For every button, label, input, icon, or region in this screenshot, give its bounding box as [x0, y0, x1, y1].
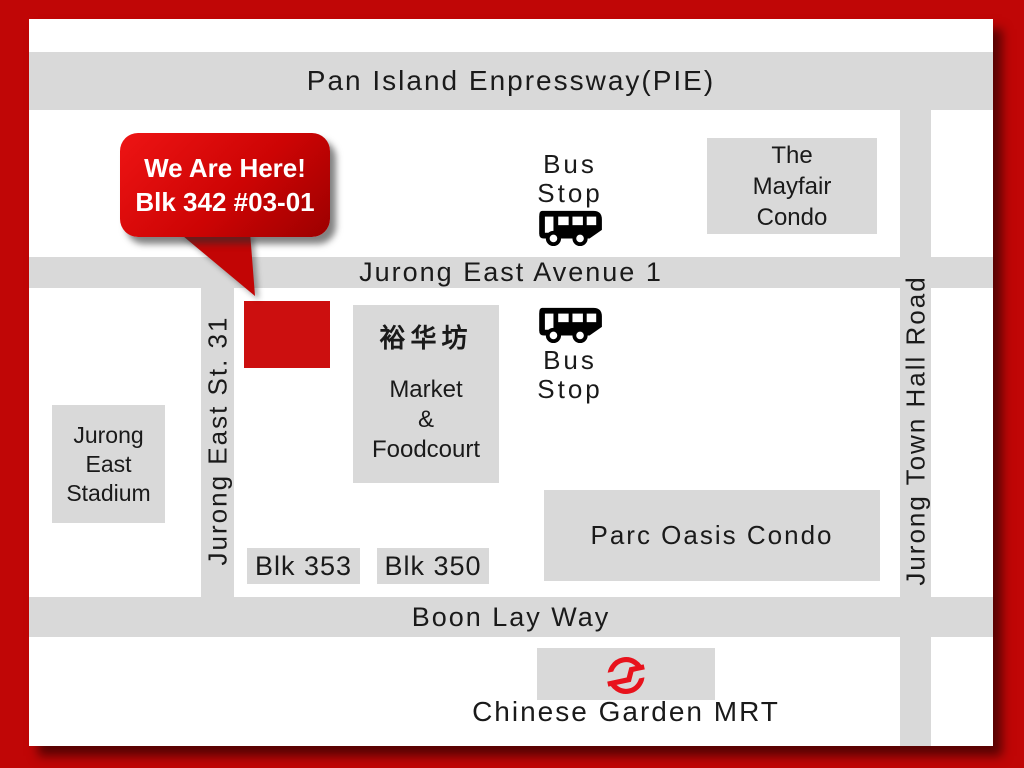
bus-stop-top-label: Bus Stop [525, 150, 615, 208]
stadium-line2: East [85, 450, 131, 479]
bus-stop-mid-label: Bus Stop [525, 346, 615, 404]
callout-line1: We Are Here! [144, 151, 306, 185]
stadium-line1: Jurong [73, 421, 143, 450]
road-label-st-31: Jurong East St. 31 [202, 271, 235, 611]
mrt-station-label: Chinese Garden MRT [426, 696, 826, 728]
mayfair-line1: The [771, 140, 812, 171]
bus-stop-mid-line2: Stop [525, 375, 615, 404]
road-label-avenue-1: Jurong East Avenue 1 [359, 257, 663, 288]
callout-line2: Blk 342 #03-01 [135, 185, 314, 219]
mrt-logo-icon [599, 654, 653, 697]
building-parc-oasis-condo: Parc Oasis Condo [544, 490, 880, 581]
market-line2: & [418, 405, 434, 435]
building-mayfair-condo: The Mayfair Condo [707, 138, 877, 234]
bus-icon [533, 306, 610, 344]
we-are-here-callout: We Are Here! Blk 342 #03-01 [120, 133, 330, 237]
blk-350-label: Blk 350 [384, 551, 481, 582]
market-line3: Foodcourt [372, 435, 480, 465]
target-block-342 [244, 301, 330, 368]
stadium-line3: Stadium [66, 479, 150, 508]
speech-bubble-tail [169, 229, 269, 304]
bus-stop-top-line2: Stop [525, 179, 615, 208]
road-label-boon-lay-way: Boon Lay Way [412, 602, 611, 633]
building-blk-350: Blk 350 [377, 548, 489, 584]
market-chinese-name: 裕华坊 [379, 323, 472, 353]
parc-oasis-label: Parc Oasis Condo [591, 520, 834, 551]
bus-stop-mid-line1: Bus [525, 346, 615, 375]
bus-stop-top-line1: Bus [525, 150, 615, 179]
blk-353-label: Blk 353 [255, 551, 352, 582]
building-blk-353: Blk 353 [247, 548, 360, 584]
road-boon-lay-way: Boon Lay Way [29, 597, 993, 637]
road-label-pie: Pan Island Enpressway(PIE) [307, 65, 715, 97]
road-label-town-hall-road: Jurong Town Hall Road [901, 181, 932, 681]
road-pan-island-expressway: Pan Island Enpressway(PIE) [29, 52, 993, 110]
bus-icon [533, 209, 610, 247]
building-jurong-east-stadium: Jurong East Stadium [52, 405, 165, 523]
building-market-foodcourt: 裕华坊 Market & Foodcourt [353, 305, 499, 483]
red-frame: Pan Island Enpressway(PIE) Jurong East A… [0, 0, 1024, 768]
mayfair-line2: Mayfair [753, 171, 832, 202]
map-canvas: Pan Island Enpressway(PIE) Jurong East A… [29, 19, 993, 746]
market-line1: Market [389, 375, 462, 405]
mayfair-line3: Condo [757, 202, 828, 233]
